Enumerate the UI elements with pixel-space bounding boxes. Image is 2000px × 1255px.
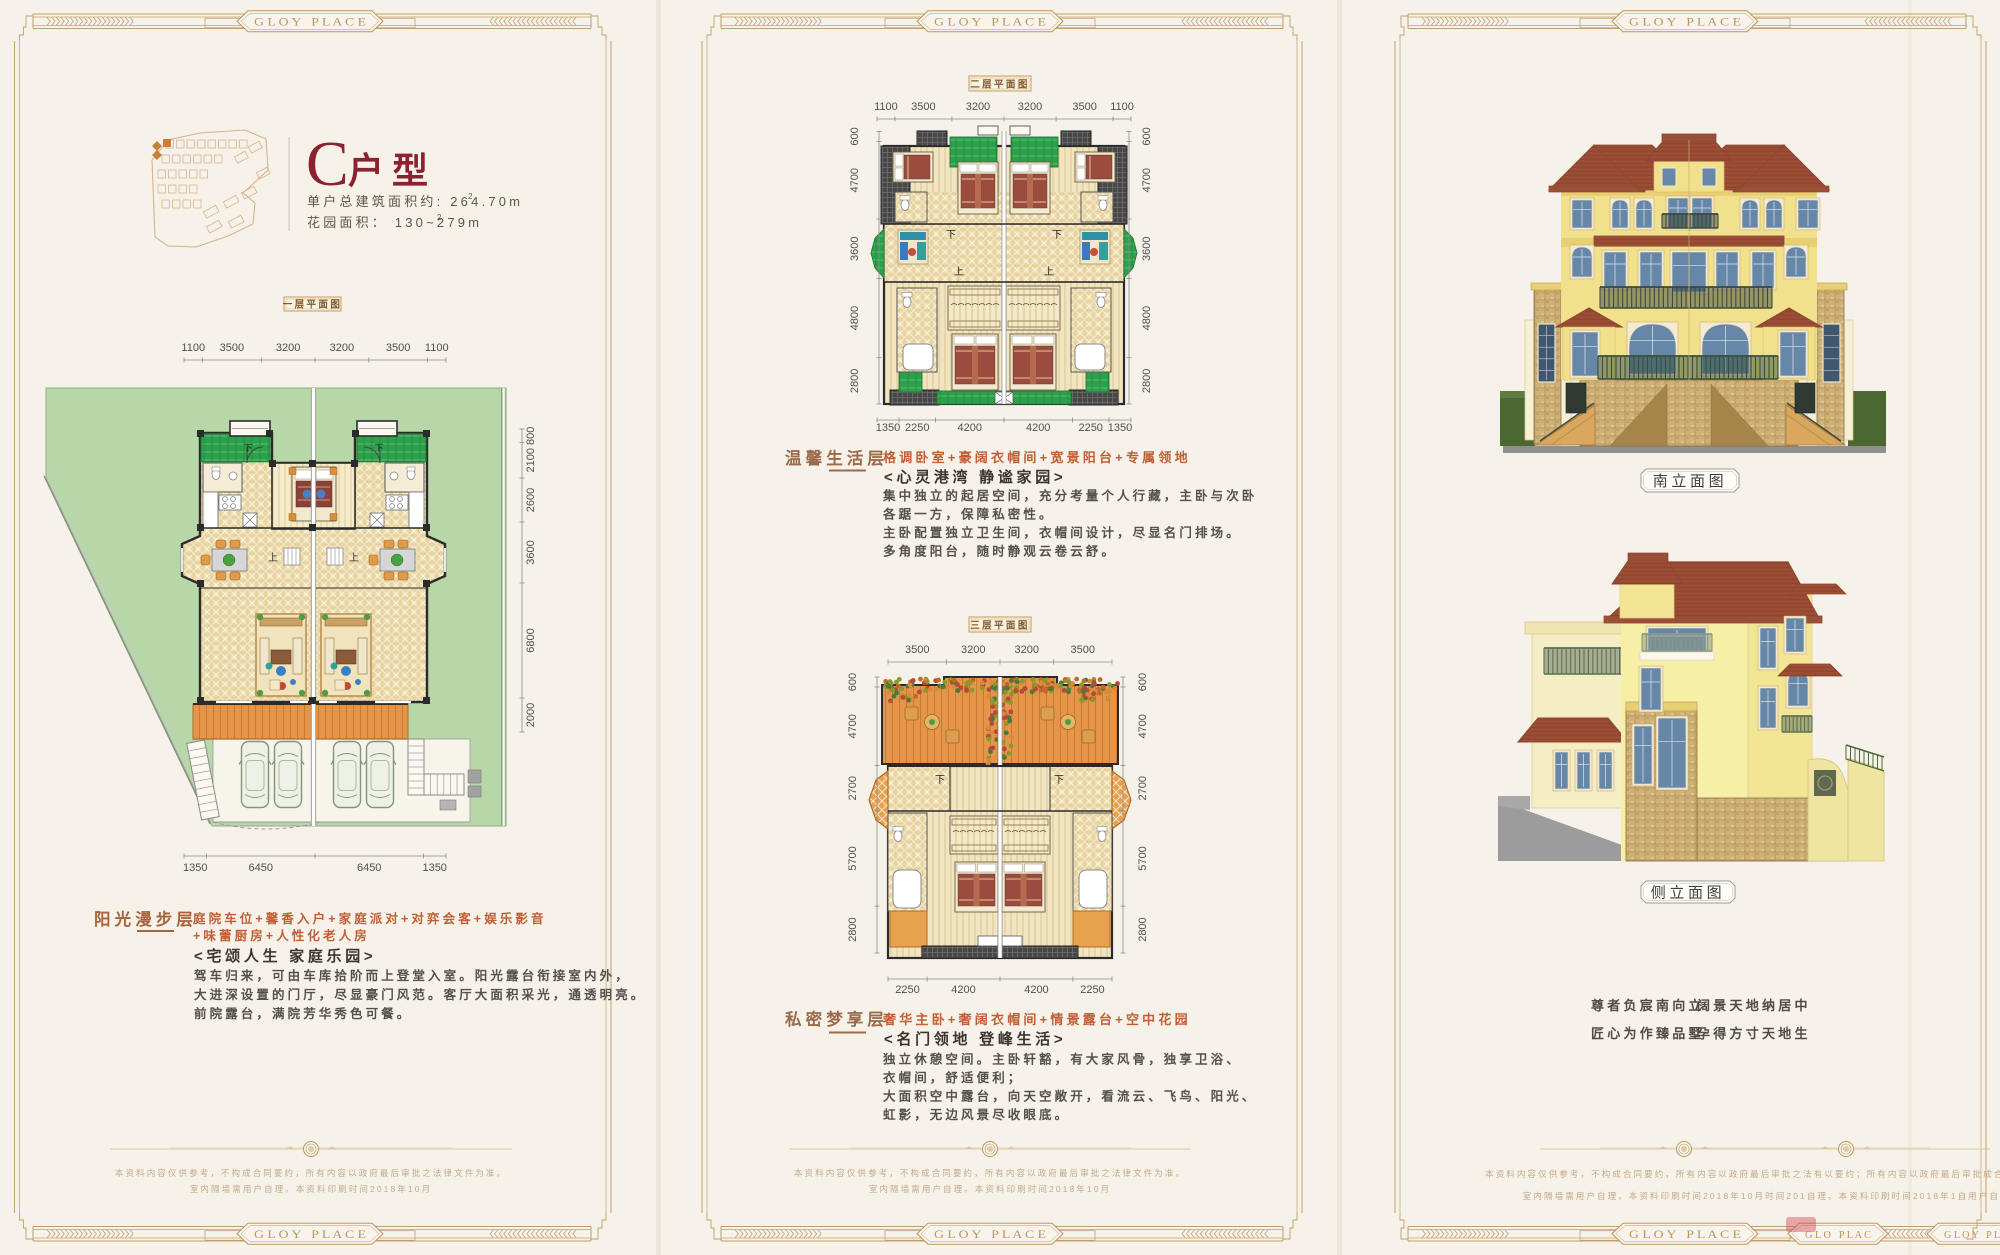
svg-text:驾车归来，可由车库拾阶而上登堂入室。阳光露台衔接室内外，: 驾车归来，可由车库拾阶而上登堂入室。阳光露台衔接室内外， [194,968,631,983]
svg-text:800: 800 [525,427,537,445]
svg-text:格调卧室+豪阔衣帽间+宽景阳台+专属领地: 格调卧室+豪阔衣帽间+宽景阳台+专属领地 [883,450,1191,465]
svg-text:4200: 4200 [958,422,982,434]
svg-text:2600: 2600 [525,488,537,512]
svg-text:2800: 2800 [847,917,859,941]
svg-text:室内隔墙需用户自理。本资料印刷时间2018年10月: 室内隔墙需用户自理。本资料印刷时间2018年10月 [190,1184,432,1194]
svg-text:集中独立的起居空间，充分考量个人行藏，主卧与次卧: 集中独立的起居空间，充分考量个人行藏，主卧与次卧 [882,488,1257,503]
svg-text:本资料内容仅供参考，不构成合同要约，所有内容以政府最后审批之: 本资料内容仅供参考，不构成合同要约，所有内容以政府最后审批之法律文件为准。 [115,1168,507,1178]
svg-text:独立休憩空间。主卧轩豁，有大家风骨，独享卫浴、: 独立休憩空间。主卧轩豁，有大家风骨，独享卫浴、 [882,1052,1242,1067]
svg-text:阔景天地纳居中: 阔景天地纳居中 [1697,998,1811,1013]
svg-text:下: 下 [1054,775,1064,786]
svg-text:1100: 1100 [1110,101,1134,113]
svg-text:2700: 2700 [847,776,859,800]
svg-text:2800: 2800 [1137,917,1149,941]
svg-text:2250: 2250 [1078,422,1102,434]
svg-text:下: 下 [946,230,956,241]
svg-text:3200: 3200 [330,342,354,354]
svg-text:6450: 6450 [249,862,273,874]
svg-text:各踞一方，保障私密性。: 各踞一方，保障私密性。 [882,507,1055,522]
svg-text:匠心为作臻品墅: 匠心为作臻品墅 [1591,1026,1705,1041]
svg-text:下: 下 [935,775,945,786]
svg-text:花园面积： 130~279m: 花园面积： 130~279m [307,215,482,230]
svg-text:2800: 2800 [1141,369,1153,393]
svg-text:3500: 3500 [905,644,929,656]
svg-text:+味蕾厨房+人性化老人房: +味蕾厨房+人性化老人房 [193,928,370,943]
svg-text:下: 下 [1052,230,1062,241]
svg-text:<心灵港湾 静谧家园>: <心灵港湾 静谧家园> [884,468,1066,486]
svg-text:1350: 1350 [876,422,900,434]
svg-text:1100: 1100 [874,101,898,113]
svg-text:上: 上 [268,552,278,564]
svg-text:5700: 5700 [1137,846,1149,870]
svg-text:G L O Y P L A C E: G L O Y P L A C E [254,16,366,28]
svg-text:侧立面图: 侧立面图 [1651,885,1725,902]
svg-text:<名门领地 登峰生活>: <名门领地 登峰生活> [884,1030,1066,1048]
svg-text:本资料内容仅供参考，不构成合同要约，所有内容以政府最后审批之: 本资料内容仅供参考，不构成合同要约，所有内容以政府最后审批之法律文件为准。 [794,1168,1186,1178]
svg-text:一层平面图: 一层平面图 [283,300,343,311]
svg-text:户型: 户型 [348,150,436,191]
svg-text:3500: 3500 [1072,101,1096,113]
svg-text:3500: 3500 [1071,644,1095,656]
svg-text:600: 600 [1141,127,1153,145]
svg-text:大面积空中露台，向天空敞开，看流云、飞鸟、阳光、: 大面积空中露台，向天空敞开，看流云、飞鸟、阳光、 [883,1089,1257,1104]
svg-text:室内隔墙需用户自理。本资料印刷时间2018年10月时间201: 室内隔墙需用户自理。本资料印刷时间2018年10月时间201自理。本资料印刷时间… [1523,1191,2000,1201]
svg-text:主卧配置独立卫生间，衣帽间设计，尽显名门排场。: 主卧配置独立卫生间，衣帽间设计，尽显名门排场。 [883,525,1242,540]
svg-text:4200: 4200 [1026,422,1050,434]
svg-text:温馨生活层: 温馨生活层 [785,448,888,468]
svg-text:1350: 1350 [422,862,446,874]
svg-text:2250: 2250 [895,984,919,996]
svg-text:3500: 3500 [386,342,410,354]
svg-text:4700: 4700 [849,168,861,192]
svg-text:二层平面图: 二层平面图 [970,80,1030,91]
svg-text:单户总建筑面积约: 264.70m: 单户总建筑面积约: 264.70m [307,194,523,209]
svg-text:2700: 2700 [1137,776,1149,800]
svg-text:私密梦享层: 私密梦享层 [785,1009,888,1029]
svg-text:3600: 3600 [849,237,861,261]
svg-text:三层平面图: 三层平面图 [970,621,1030,632]
svg-text:3600: 3600 [525,540,537,564]
svg-text:C: C [306,128,349,199]
svg-text:2800: 2800 [849,369,861,393]
svg-text:室内隔墙需用户自理。本资料印刷时间2018年10月: 室内隔墙需用户自理。本资料印刷时间2018年10月 [869,1184,1111,1194]
svg-text:3500: 3500 [911,101,935,113]
svg-text:5700: 5700 [847,846,859,870]
svg-text:3200: 3200 [1015,644,1039,656]
svg-text:3200: 3200 [276,342,300,354]
svg-text:2250: 2250 [905,422,929,434]
svg-text:孕得方寸天地生: 孕得方寸天地生 [1697,1026,1811,1041]
svg-text:G L O Y P L A C E: G L O Y P L A C E [934,1229,1046,1241]
svg-text:前院露台，满院芳华秀色可餐。: 前院露台，满院芳华秀色可餐。 [194,1006,412,1021]
svg-text:上: 上 [349,552,359,564]
svg-text:3500: 3500 [220,342,244,354]
svg-text:阳光漫步层: 阳光漫步层 [94,909,197,929]
svg-text:多角度阳台，随时静观云卷云舒。: 多角度阳台，随时静观云卷云舒。 [883,544,1117,559]
svg-text:G L O Y P L A C E: G L O Y P L A C E [1629,1229,1741,1241]
svg-text:6450: 6450 [357,862,381,874]
svg-text:4200: 4200 [1024,984,1048,996]
svg-text:4700: 4700 [847,714,859,738]
svg-text:1350: 1350 [183,862,207,874]
svg-text:4200: 4200 [951,984,975,996]
svg-text:6800: 6800 [525,628,537,652]
svg-text:2: 2 [468,192,473,201]
svg-text:3200: 3200 [961,644,985,656]
svg-text:上: 上 [1044,266,1054,278]
svg-text:1350: 1350 [1108,422,1132,434]
svg-text:600: 600 [847,673,859,691]
svg-text:<宅颂人生 家庭乐园>: <宅颂人生 家庭乐园> [194,947,376,965]
svg-text:4800: 4800 [1141,306,1153,330]
svg-text:2250: 2250 [1080,984,1104,996]
svg-text:G L O Y P L A C E: G L O Y P L A C E [254,1229,366,1241]
svg-text:本资料内容仅供参考，不构成合同要约，所有内容以政府最后审批之: 本资料内容仅供参考，不构成合同要约，所有内容以政府最后审批之法有以要约；所有内容… [1485,1169,2000,1179]
svg-text:4700: 4700 [1137,714,1149,738]
svg-text:大进深设置的门厅，尽显豪门风范。客厅大面积采光，通透明亮。: 大进深设置的门厅，尽显豪门风范。客厅大面积采光，通透明亮。 [194,987,646,1002]
svg-text:1100: 1100 [181,342,205,354]
svg-text:600: 600 [849,127,861,145]
svg-text:4800: 4800 [849,306,861,330]
svg-text:3200: 3200 [1018,101,1042,113]
svg-text:下: 下 [243,443,252,453]
svg-text:衣帽间，舒适便利；: 衣帽间，舒适便利； [883,1070,1023,1085]
svg-text:2000: 2000 [525,703,537,727]
svg-text:600: 600 [1137,673,1149,691]
svg-text:尊者负宸南向立: 尊者负宸南向立 [1591,998,1705,1013]
svg-text:奢华主卧+奢阔衣帽间+情景露台+空中花园: 奢华主卧+奢阔衣帽间+情景露台+空中花园 [882,1012,1191,1027]
svg-text:G L O Y P L A C E: G L O Y P L A C E [934,16,1046,28]
svg-text:虹影，无边风景尽收眼底。: 虹影，无边风景尽收眼底。 [883,1107,1070,1122]
svg-text:4700: 4700 [1141,168,1153,192]
svg-text:2100: 2100 [525,448,537,472]
svg-text:南立面图: 南立面图 [1653,473,1727,490]
svg-text:G L O Y P L A C E: G L O Y P L A C E [1629,16,1741,28]
svg-text:庭院车位+馨香入户+家庭派对+对弈会客+娱乐影音: 庭院车位+馨香入户+家庭派对+对弈会客+娱乐影音 [193,911,547,926]
svg-text:3600: 3600 [1141,237,1153,261]
svg-text:2: 2 [437,213,442,222]
svg-text:3200: 3200 [966,101,990,113]
svg-text:1100: 1100 [425,342,449,354]
svg-text:下: 下 [374,443,383,453]
svg-text:上: 上 [954,266,964,278]
